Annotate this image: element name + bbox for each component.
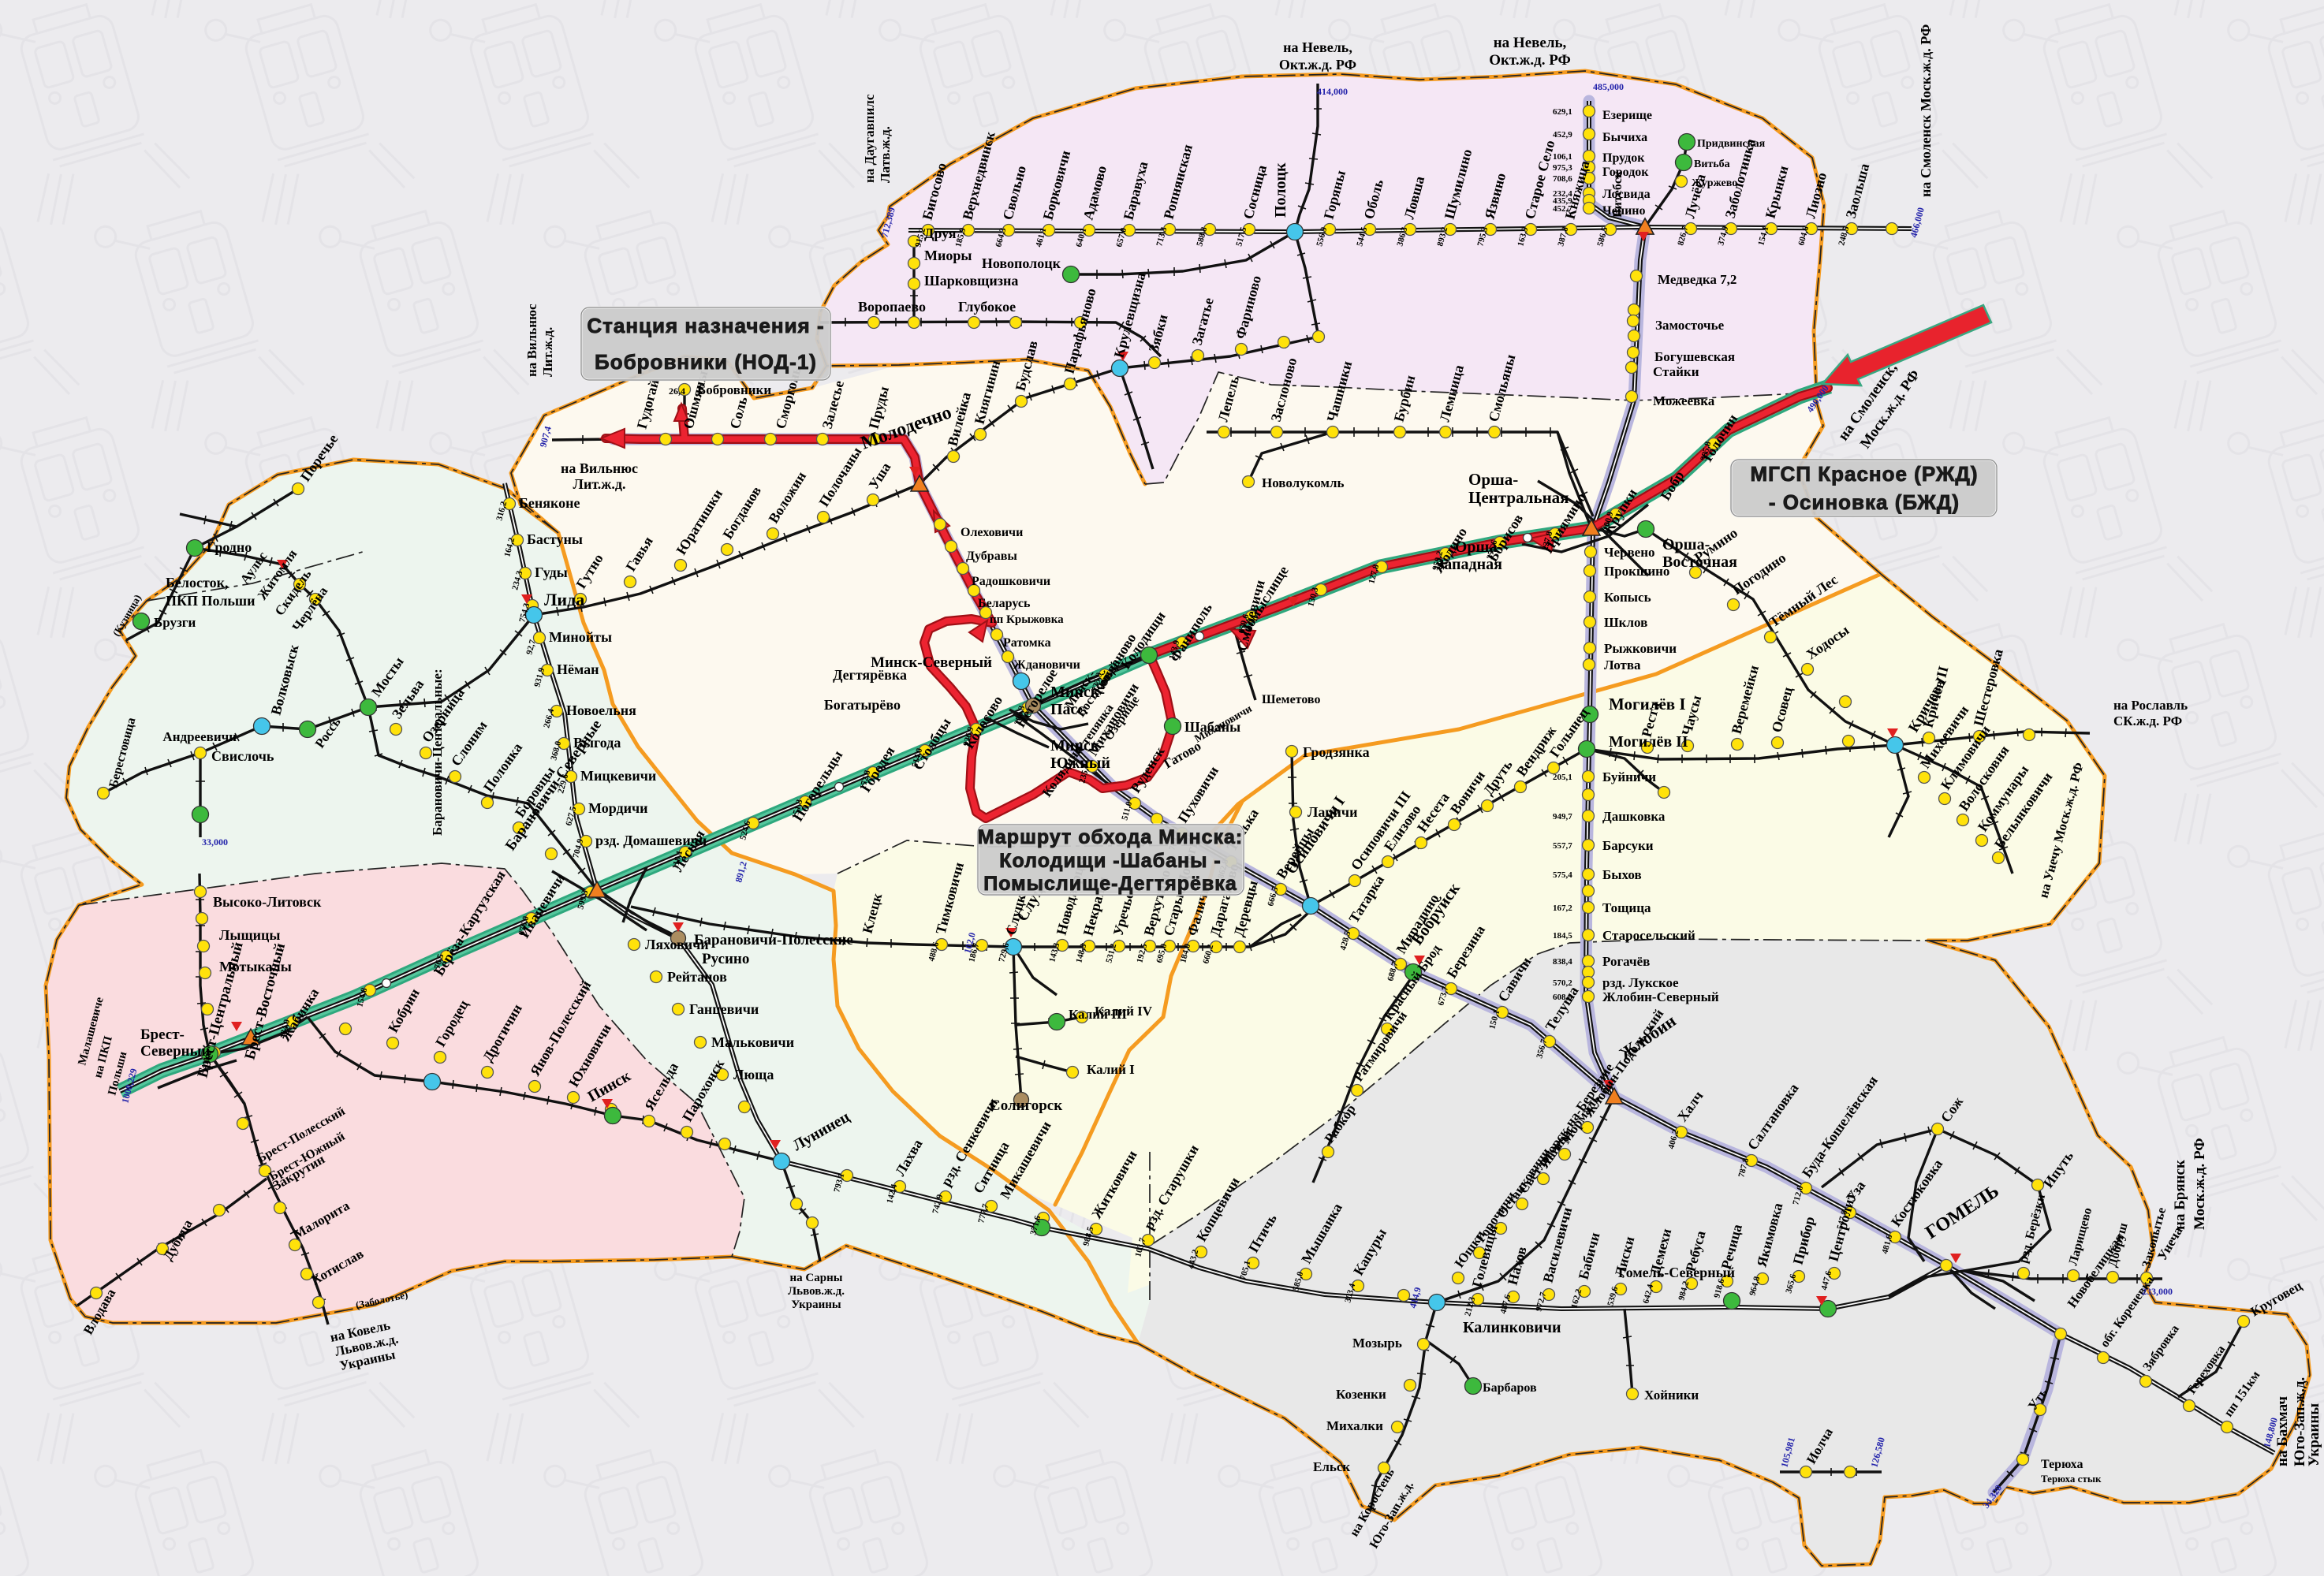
svg-text:Окт.ж.д. РФ: Окт.ж.д. РФ	[1279, 57, 1356, 73]
svg-text:Станция назначения -: Станция назначения -	[587, 314, 824, 337]
svg-text:Мордичи: Мордичи	[588, 800, 648, 816]
svg-text:Беларусь: Беларусь	[978, 597, 1031, 610]
svg-text:на Сарны: на Сарны	[790, 1272, 843, 1284]
svg-text:106,1: 106,1	[1553, 152, 1572, 162]
svg-text:Новополоцк: Новополоцк	[982, 255, 1061, 271]
svg-text:Терюха стык: Терюха стык	[2041, 1473, 2102, 1485]
svg-text:Латв.ж.д.: Латв.ж.д.	[878, 126, 893, 183]
svg-text:Миоры: Миоры	[924, 248, 972, 263]
svg-text:Можеевка: Можеевка	[1653, 393, 1715, 408]
svg-text:пп Крыжовка: пп Крыжовка	[990, 613, 1064, 626]
svg-text:рзд. Домашевичи: рзд. Домашевичи	[595, 833, 707, 848]
svg-text:Чепино: Чепино	[1602, 204, 1646, 218]
svg-text:на Вильнюс: на Вильнюс	[561, 460, 638, 476]
svg-text:Бычиха: Бычиха	[1602, 131, 1647, 144]
svg-text:608,0: 608,0	[1553, 993, 1572, 1002]
svg-text:Глубокое: Глубокое	[958, 299, 1016, 315]
svg-text:Новолукомль: Новолукомль	[1262, 475, 1345, 490]
svg-text:Тощица: Тощица	[1602, 900, 1651, 915]
svg-text:Выгода: Выгода	[573, 735, 621, 751]
svg-text:Рейтанов: Рейтанов	[667, 969, 727, 985]
svg-text:Русино: Русино	[702, 951, 749, 967]
svg-text:Украины: Украины	[2306, 1403, 2322, 1466]
svg-text:414,000: 414,000	[1317, 86, 1348, 97]
svg-text:Орша-: Орша-	[1468, 470, 1518, 489]
svg-text:Калий IV: Калий IV	[1095, 1004, 1153, 1019]
svg-text:Колодищи -Шабаны -: Колодищи -Шабаны -	[999, 850, 1221, 872]
svg-text:Рогачёв: Рогачёв	[1602, 954, 1650, 969]
svg-text:Ляховичи: Ляховичи	[645, 937, 709, 952]
svg-text:Богушевская: Богушевская	[1654, 349, 1735, 364]
svg-text:Новоельня: Новоельня	[566, 702, 636, 718]
svg-text:Витьба: Витьба	[1694, 158, 1730, 170]
svg-text:Ждановичи: Ждановичи	[1013, 658, 1080, 672]
svg-text:Лотва: Лотва	[1604, 658, 1641, 673]
svg-text:575,4: 575,4	[1553, 870, 1572, 880]
svg-text:Буйничи: Буйничи	[1602, 769, 1656, 784]
svg-text:- Осиновка (БЖД): - Осиновка (БЖД)	[1769, 490, 1960, 514]
svg-text:Окт.ж.д. РФ: Окт.ж.д. РФ	[1489, 52, 1571, 69]
svg-text:Барбаров: Барбаров	[1483, 1381, 1537, 1395]
svg-text:Червено: Червено	[1604, 545, 1655, 560]
svg-text:33,000: 33,000	[202, 836, 228, 848]
svg-text:Друя: Друя	[924, 225, 957, 241]
svg-text:452,7: 452,7	[1553, 204, 1572, 214]
svg-text:Дашковка: Дашковка	[1602, 809, 1666, 824]
svg-text:Ганцевичи: Ганцевичи	[689, 1001, 759, 1017]
svg-text:Гродзянка: Гродзянка	[1303, 744, 1370, 760]
svg-text:Медведка 7,2: Медведка 7,2	[1658, 272, 1736, 287]
svg-text:Терюха: Терюха	[2041, 1458, 2083, 1471]
svg-text:Бастуны: Бастуны	[527, 531, 583, 547]
svg-text:на Даугавпилс: на Даугавпилс	[862, 94, 877, 183]
svg-text:на Вильнюс: на Вильнюс	[524, 304, 539, 377]
svg-text:на Рославль: на Рославль	[2113, 698, 2188, 713]
svg-text:МГСП Красное (РЖД): МГСП Красное (РЖД)	[1750, 462, 1978, 486]
svg-text:на Смоленск Моск.ж.д. РФ: на Смоленск Моск.ж.д. РФ	[1918, 24, 1934, 197]
svg-text:Люща: Люща	[733, 1067, 774, 1082]
svg-text:Центральная: Центральная	[1468, 488, 1569, 507]
svg-text:Шарковщизна: Шарковщизна	[924, 273, 1018, 289]
svg-text:Беняконе: Беняконе	[519, 495, 580, 511]
svg-text:Брузги: Брузги	[154, 615, 196, 630]
svg-text:Хойники: Хойники	[1644, 1388, 1699, 1403]
svg-text:205,1: 205,1	[1553, 773, 1572, 782]
svg-text:на Бахмач: на Бахмач	[2274, 1396, 2291, 1466]
svg-text:838,4: 838,4	[1553, 957, 1572, 967]
svg-text:Калинковичи: Калинковичи	[1463, 1319, 1561, 1336]
svg-text:Езерище: Езерище	[1602, 109, 1652, 122]
svg-text:Свислочь: Свислочь	[211, 748, 274, 764]
svg-text:Олеховичи: Олеховичи	[961, 526, 1023, 539]
svg-text:Лит.ж.д.: Лит.ж.д.	[540, 327, 555, 377]
svg-text:167,2: 167,2	[1553, 903, 1572, 913]
svg-text:Моск.ж.д. РФ: Моск.ж.д. РФ	[2192, 1138, 2208, 1230]
svg-text:949,7: 949,7	[1553, 812, 1572, 822]
svg-text:Белосток,: Белосток,	[166, 575, 228, 591]
svg-text:557,7: 557,7	[1553, 841, 1572, 851]
svg-text:Лит.ж.д.: Лит.ж.д.	[573, 476, 626, 492]
svg-text:Михалки: Михалки	[1326, 1418, 1383, 1433]
svg-text:Солигорск: Солигорск	[990, 1097, 1062, 1114]
svg-text:184,5: 184,5	[1553, 931, 1572, 941]
svg-text:Барановичи-Полесские: Барановичи-Полесские	[694, 932, 853, 948]
svg-text:233,000: 233,000	[2142, 1286, 2173, 1297]
svg-text:Маршрут обхода Минска:: Маршрут обхода Минска:	[978, 826, 1243, 848]
svg-text:Шклов: Шклов	[1604, 615, 1647, 630]
svg-text:Воропаево: Воропаево	[858, 299, 926, 315]
svg-text:Козенки: Козенки	[1336, 1387, 1386, 1402]
svg-text:Мицкевичи: Мицкевичи	[580, 768, 656, 784]
svg-text:Брест-: Брест-	[140, 1026, 185, 1043]
svg-text:Лосвида: Лосвида	[1602, 188, 1651, 201]
svg-text:Высоко-Литовск: Высоко-Литовск	[213, 894, 322, 910]
svg-text:Мотыкалы: Мотыкалы	[219, 959, 292, 974]
svg-text:Городок: Городок	[1602, 166, 1649, 179]
svg-text:Прокшино: Прокшино	[1604, 564, 1669, 579]
svg-text:Копысь: Копысь	[1604, 590, 1651, 605]
svg-text:Ратомка: Ратомка	[1003, 636, 1051, 650]
svg-text:Львов.ж.д.: Львов.ж.д.	[788, 1285, 845, 1298]
svg-text:Прудок: Прудок	[1602, 151, 1645, 165]
svg-text:Дубравы: Дубравы	[966, 550, 1017, 563]
svg-text:Мозырь: Мозырь	[1352, 1336, 1402, 1351]
svg-text:Лыщицы: Лыщицы	[219, 927, 280, 943]
svg-text:Шеметово: Шеметово	[1262, 693, 1320, 706]
svg-text:Дегтярёвка: Дегтярёвка	[833, 667, 907, 683]
svg-text:629,1: 629,1	[1553, 107, 1572, 117]
svg-text:Гуды: Гуды	[535, 564, 568, 580]
svg-text:Полоцк: Полоцк	[1272, 162, 1289, 218]
svg-text:708,6: 708,6	[1553, 174, 1572, 184]
svg-text:рзд. Лукское: рзд. Лукское	[1602, 975, 1679, 990]
svg-text:Барсуки: Барсуки	[1602, 838, 1654, 853]
svg-text:Ельск: Ельск	[1313, 1459, 1350, 1474]
svg-text:Нёман: Нёман	[557, 661, 599, 677]
svg-text:Лапичи: Лапичи	[1307, 804, 1357, 820]
svg-text:Быхов: Быхов	[1602, 867, 1642, 882]
svg-text:Радошковичи: Радошковичи	[972, 575, 1050, 588]
svg-text:485,000: 485,000	[1593, 81, 1624, 92]
svg-text:ПКП Польши: ПКП Польши	[166, 593, 256, 609]
svg-text:Богатырёво: Богатырёво	[824, 697, 901, 713]
svg-text:570,2: 570,2	[1553, 978, 1572, 988]
svg-text:975,3: 975,3	[1553, 163, 1572, 173]
svg-text:Украины: Украины	[791, 1298, 841, 1311]
svg-text:Калий I: Калий I	[1087, 1062, 1135, 1077]
svg-text:Минойты: Минойты	[549, 629, 612, 645]
svg-text:на Невель,: на Невель,	[1283, 39, 1352, 55]
svg-text:Бобровники (НОД-1): Бобровники (НОД-1)	[595, 350, 817, 374]
svg-text:Замосточье: Замосточье	[1655, 318, 1725, 333]
svg-text:Барановичи-Центральные:: Барановичи-Центральные:	[430, 669, 445, 836]
svg-text:Мальковичи: Мальковичи	[711, 1034, 794, 1050]
svg-text:СК.ж.д. РФ: СК.ж.д. РФ	[2113, 713, 2182, 728]
svg-text:Жлобин-Северный: Жлобин-Северный	[1602, 989, 1719, 1004]
svg-text:Помыслище-Дегтярёвка: Помыслище-Дегтярёвка	[983, 873, 1237, 895]
svg-text:Рыжковичи: Рыжковичи	[1604, 641, 1677, 656]
svg-text:на Брянск: на Брянск	[2172, 1160, 2188, 1230]
svg-text:452,9: 452,9	[1553, 130, 1572, 140]
svg-text:Лида: Лида	[544, 590, 584, 609]
svg-text:Стайки: Стайки	[1653, 364, 1699, 379]
svg-text:Андреевичи: Андреевичи	[162, 729, 237, 744]
svg-text:Гродно: Гродно	[207, 539, 252, 555]
svg-text:26,4: 26,4	[669, 386, 685, 397]
svg-text:Старосельский: Старосельский	[1602, 928, 1695, 943]
svg-text:на Невель,: на Невель,	[1494, 35, 1567, 51]
